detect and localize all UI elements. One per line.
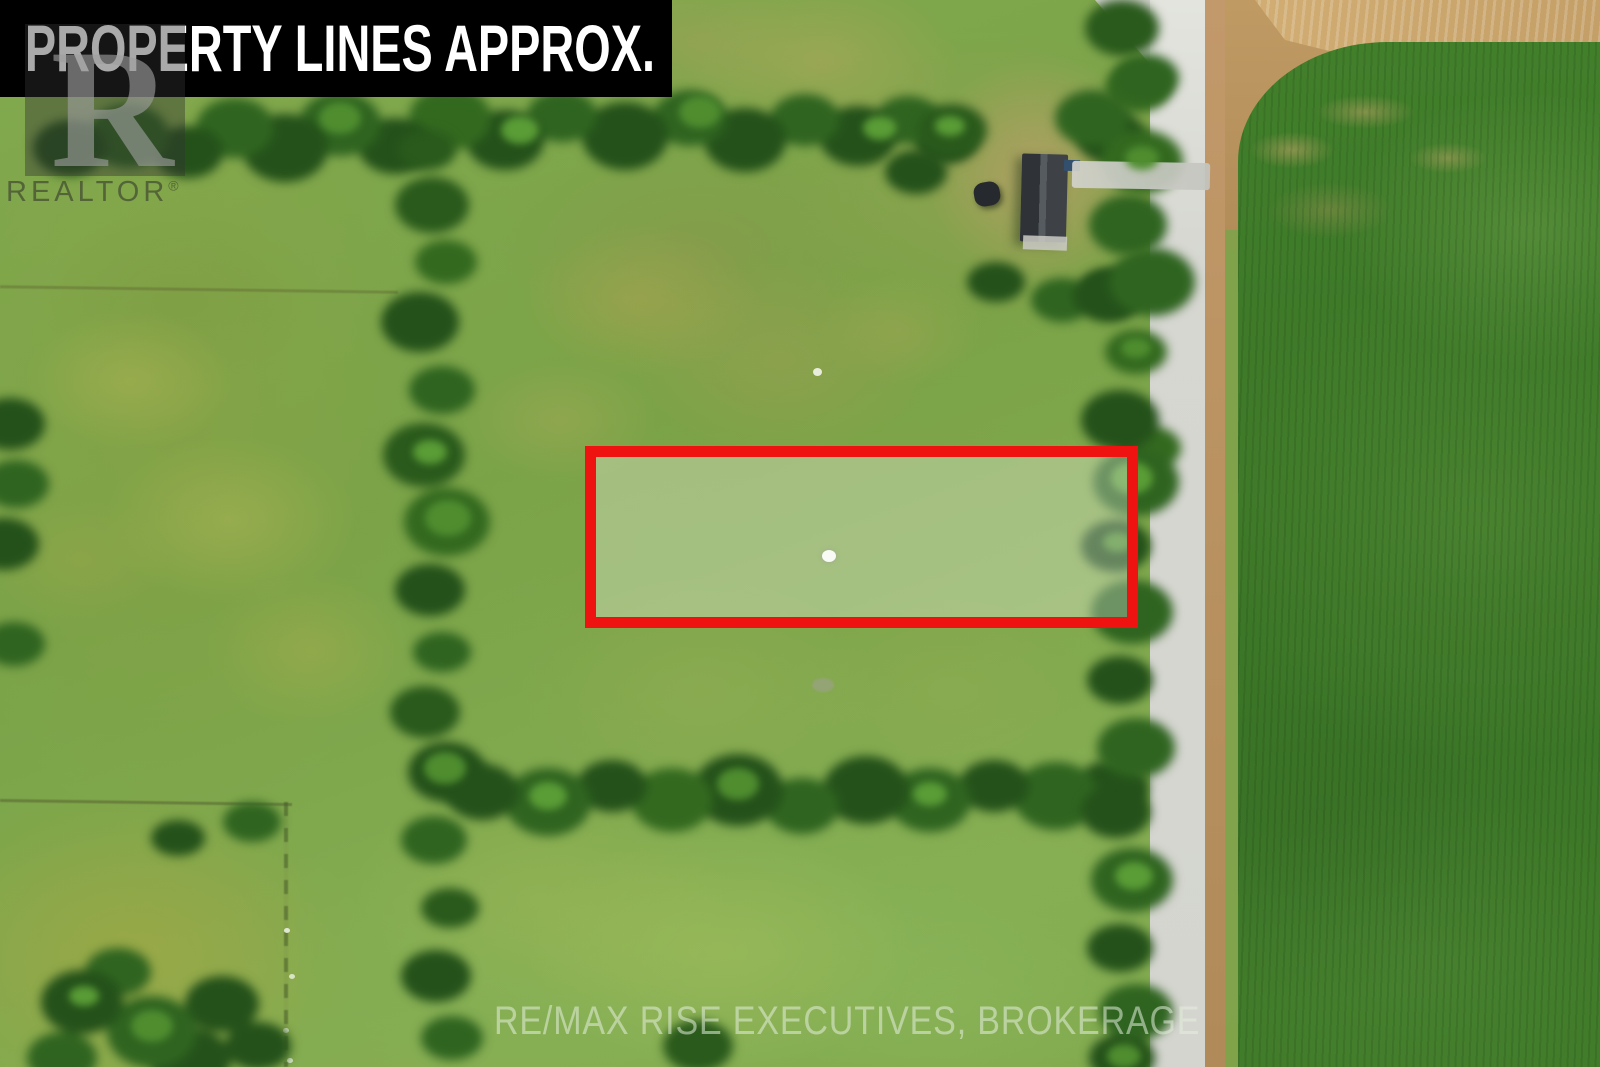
property-outline (585, 446, 1138, 628)
driveway (1072, 161, 1210, 190)
house-roof (1020, 153, 1068, 242)
aerial-photo: PROPERTY LINES APPROX. R REALTOR® RE/MAX… (0, 0, 1600, 1067)
registered-symbol: ® (168, 177, 178, 193)
brokerage-watermark: RE/MAX RISE EXECUTIVES, BROKERAGE (494, 1000, 1106, 1042)
crop-field (1238, 42, 1600, 1067)
road (1150, 0, 1205, 1067)
realtor-label-text: REALTOR (6, 176, 168, 208)
gray-debris-patch (812, 678, 834, 692)
realtor-watermark: R REALTOR® (0, 0, 260, 230)
road-verge (1225, 230, 1238, 1067)
realtor-label: REALTOR® (6, 176, 236, 209)
white-speck (813, 368, 822, 376)
fence-line-bottom-vertical (284, 802, 288, 1067)
patio (1023, 235, 1067, 251)
road-shoulder (1205, 0, 1225, 1067)
